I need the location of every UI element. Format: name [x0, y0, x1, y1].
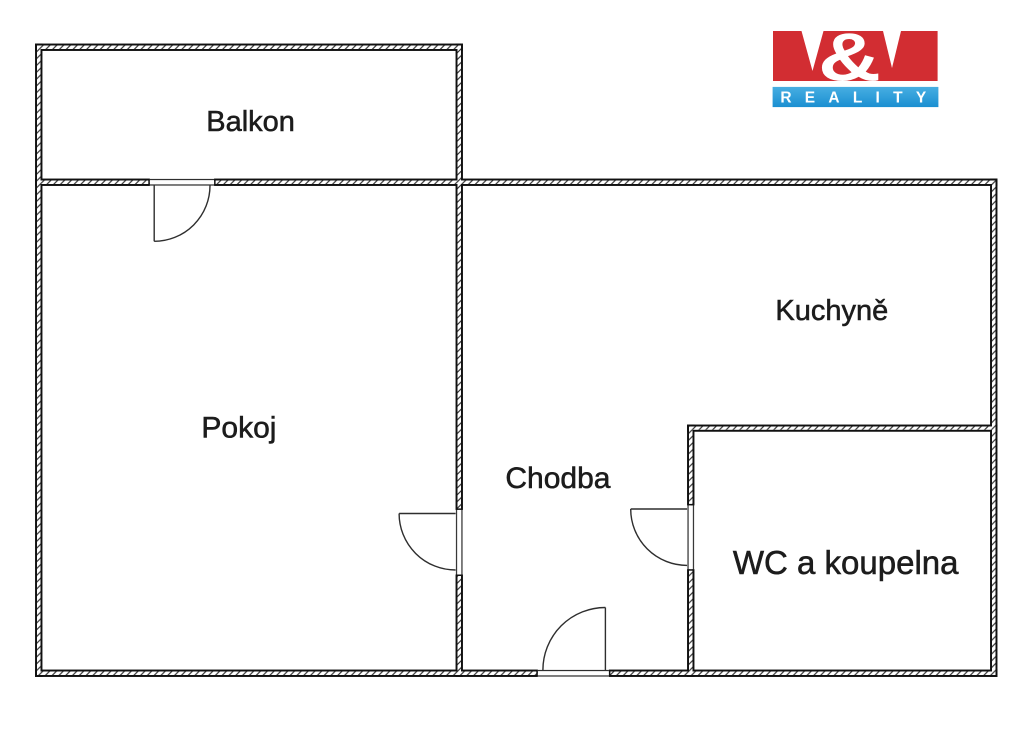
svg-text:Chodba: Chodba	[505, 462, 610, 495]
svg-text:REALITY: REALITY	[780, 89, 939, 106]
svg-text:WC a koupelna: WC a koupelna	[733, 544, 959, 581]
svg-text:&: &	[818, 19, 881, 96]
svg-text:Pokoj: Pokoj	[201, 412, 276, 445]
svg-text:Balkon: Balkon	[206, 106, 295, 138]
svg-text:Kuchyně: Kuchyně	[775, 295, 888, 327]
